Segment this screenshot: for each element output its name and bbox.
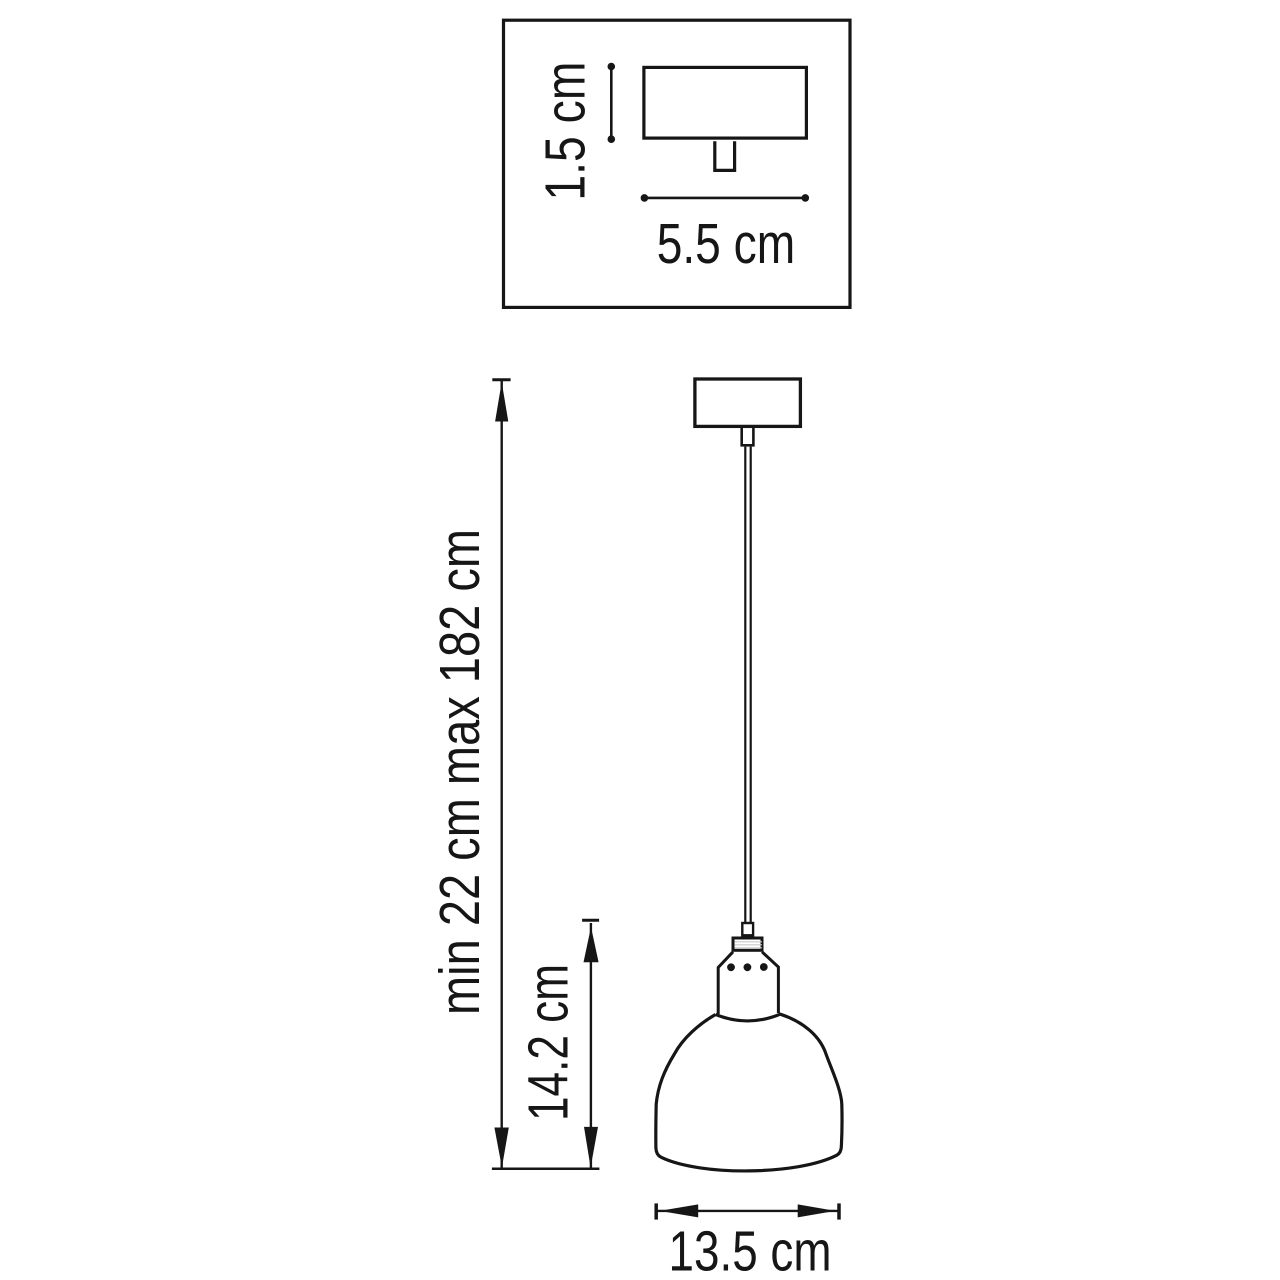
svg-text:5.5 cm: 5.5 cm [657, 212, 796, 276]
svg-text:1.5 cm: 1.5 cm [534, 62, 598, 201]
svg-text:min 22 cm max 182 cm: min 22 cm max 182 cm [428, 529, 492, 1015]
svg-text:14.2 cm: 14.2 cm [517, 964, 581, 1121]
svg-text:13.5 cm: 13.5 cm [669, 1220, 832, 1280]
